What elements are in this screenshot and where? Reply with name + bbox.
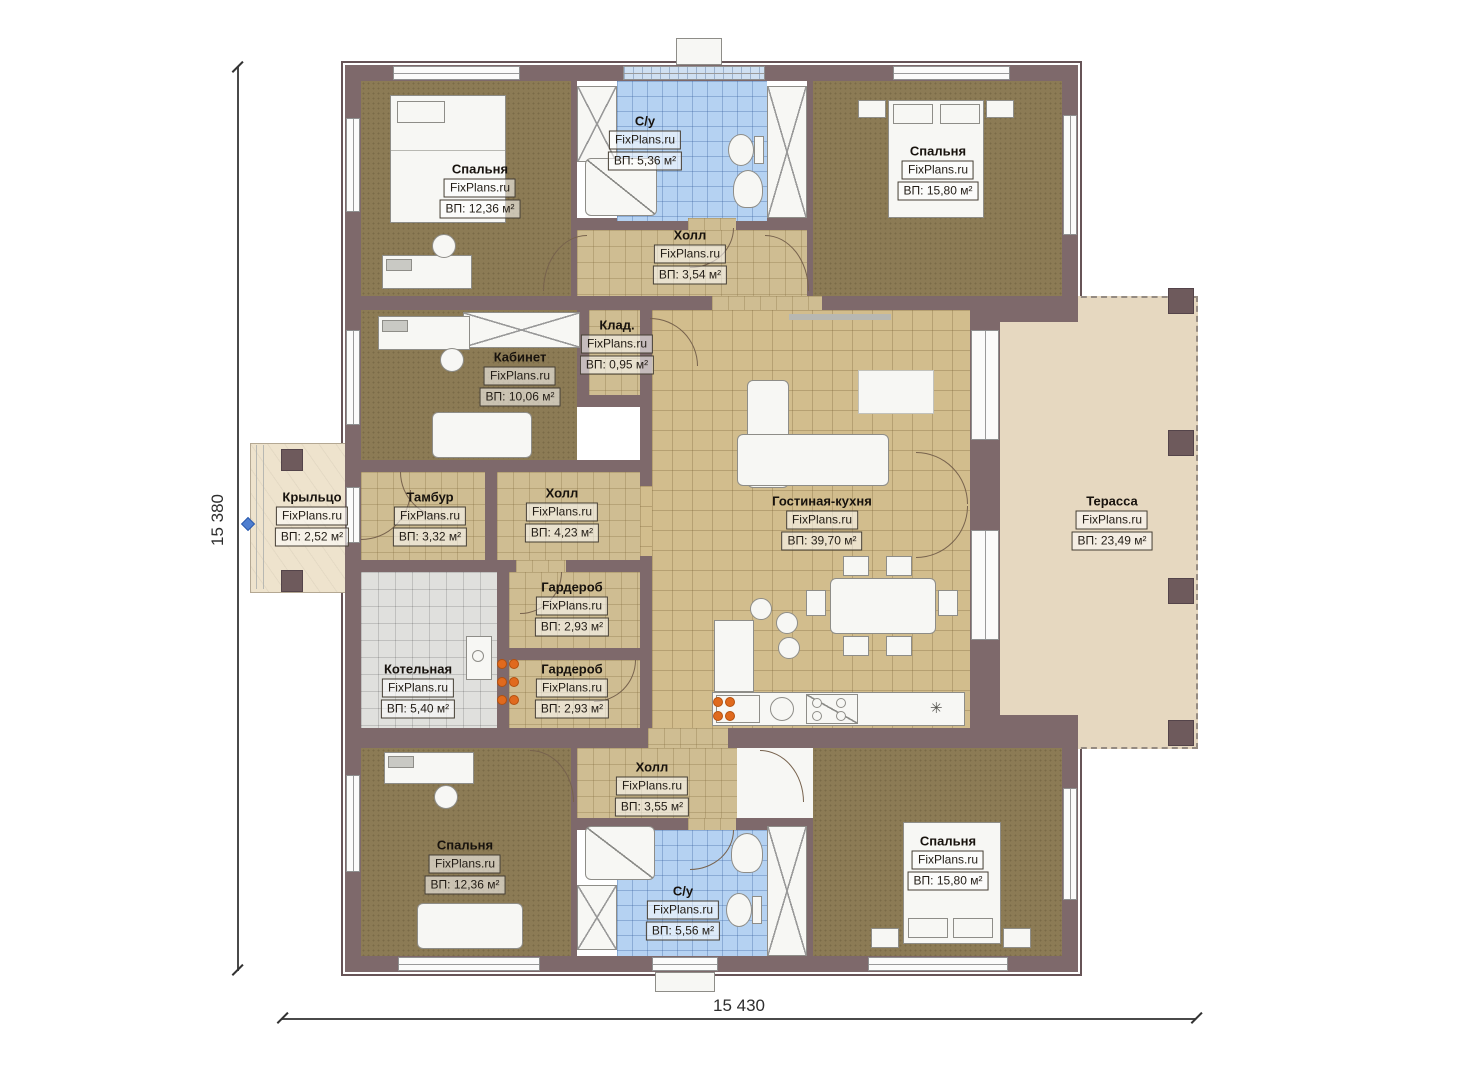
room-name: Спальня xyxy=(437,838,493,853)
dimension-label-left: 15 380 xyxy=(208,490,228,550)
dining-table xyxy=(830,578,936,634)
room-label-hall-middle: Холл FixPlans.ru ВП: 4,23 м² xyxy=(525,486,599,543)
room-brand-watermark: FixPlans.ru xyxy=(902,161,974,180)
room-name: Клад. xyxy=(599,318,634,333)
room-name: Кабинет xyxy=(494,350,547,365)
terrace-post xyxy=(1168,430,1194,456)
dimension-label-bottom: 15 430 xyxy=(679,996,799,1016)
stool xyxy=(776,612,798,634)
opening xyxy=(688,818,736,830)
room-label-hall-top: Холл FixPlans.ru ВП: 3,54 м² xyxy=(653,228,727,285)
radiator-dot xyxy=(726,712,734,720)
room-label-bedroom-top-right: Спальня FixPlans.ru ВП: 15,80 м² xyxy=(898,144,979,201)
dining-chair xyxy=(886,636,912,656)
stove-burner xyxy=(812,711,822,721)
room-label-terrace: Терасса FixPlans.ru ВП: 23,49 м² xyxy=(1072,494,1153,551)
room-label-bedroom-bottom-right: Спальня FixPlans.ru ВП: 15,80 м² xyxy=(908,834,989,891)
window xyxy=(398,957,540,971)
room-brand-watermark: FixPlans.ru xyxy=(912,851,984,870)
room-area: ВП: 12,36 м² xyxy=(440,200,521,219)
nightstand xyxy=(986,100,1014,118)
room-name: Терасса xyxy=(1086,494,1138,509)
wall xyxy=(497,572,509,728)
chair xyxy=(440,348,464,372)
room-brand-watermark: FixPlans.ru xyxy=(382,679,454,698)
toilet-tank xyxy=(752,896,762,924)
dimension-line-left xyxy=(237,67,239,971)
radiator-dot xyxy=(714,698,722,706)
porch-step-line xyxy=(256,445,257,589)
toilet-tank xyxy=(754,136,764,164)
room-label-bathroom-bottom: С/у FixPlans.ru ВП: 5,56 м² xyxy=(646,884,720,941)
tv-console xyxy=(789,314,891,320)
bed-pillow xyxy=(940,104,980,124)
closet xyxy=(577,885,617,950)
radiator-dot xyxy=(714,712,722,720)
room-brand-watermark: FixPlans.ru xyxy=(526,503,598,522)
terrace-post xyxy=(1168,720,1194,746)
room-label-boiler: Котельная FixPlans.ru ВП: 5,40 м² xyxy=(381,662,455,719)
nightstand xyxy=(871,928,899,948)
window xyxy=(1063,115,1077,235)
room-brand-watermark: FixPlans.ru xyxy=(654,245,726,264)
room-name: Холл xyxy=(546,486,579,501)
radiator-dot xyxy=(510,696,518,704)
wall xyxy=(509,648,640,660)
room-name: Спальня xyxy=(910,144,966,159)
room-name: С/у xyxy=(673,884,693,899)
bed-blanket-line xyxy=(391,150,505,151)
dining-chair xyxy=(843,556,869,576)
window xyxy=(893,66,1010,80)
wall xyxy=(361,460,652,472)
stool xyxy=(778,637,800,659)
stool xyxy=(750,598,772,620)
room-area: ВП: 2,93 м² xyxy=(535,700,609,719)
room-name: Котельная xyxy=(384,662,452,677)
back-door xyxy=(652,957,718,971)
sink xyxy=(731,833,763,873)
room-brand-watermark: FixPlans.ru xyxy=(616,777,688,796)
room-label-living-kitchen: Гостиная-кухня FixPlans.ru ВП: 39,70 м² xyxy=(772,494,872,551)
room-area: ВП: 4,23 м² xyxy=(525,524,599,543)
room-area: ВП: 3,54 м² xyxy=(653,266,727,285)
room-area: ВП: 15,80 м² xyxy=(908,872,989,891)
fridge xyxy=(716,695,760,723)
room-area: ВП: 15,80 м² xyxy=(898,182,979,201)
room-area: ВП: 12,36 м² xyxy=(425,876,506,895)
room-brand-watermark: FixPlans.ru xyxy=(429,855,501,874)
boiler-gauge xyxy=(472,650,484,662)
room-brand-watermark: FixPlans.ru xyxy=(484,367,556,386)
window xyxy=(1063,788,1077,900)
porch-post xyxy=(281,449,303,471)
room-area: ВП: 5,56 м² xyxy=(646,922,720,941)
dining-chair xyxy=(938,590,958,616)
room-label-office: Кабинет FixPlans.ru ВП: 10,06 м² xyxy=(480,350,561,407)
sink xyxy=(733,170,763,208)
sofa xyxy=(432,412,532,458)
desk-device xyxy=(382,320,408,332)
room-label-bedroom-bottom-left: Спальня FixPlans.ru ВП: 12,36 м² xyxy=(425,838,506,895)
room-brand-watermark: FixPlans.ru xyxy=(444,179,516,198)
room-name: Спальня xyxy=(920,834,976,849)
room-label-storage: Клад. FixPlans.ru ВП: 0,95 м² xyxy=(580,318,654,375)
freezer-symbol: ✳ xyxy=(930,701,943,716)
room-name: Крыльцо xyxy=(282,490,341,505)
bed-pillow xyxy=(953,918,993,938)
room-brand-watermark: FixPlans.ru xyxy=(276,507,348,526)
room-brand-watermark: FixPlans.ru xyxy=(536,597,608,616)
room-label-porch: Крыльцо FixPlans.ru ВП: 2,52 м² xyxy=(275,490,349,547)
bed-pillow xyxy=(397,101,445,123)
kitchen-counter-return xyxy=(714,620,754,692)
window xyxy=(346,775,360,872)
shower xyxy=(585,826,655,880)
radiator-dot xyxy=(510,678,518,686)
dining-chair xyxy=(843,636,869,656)
room-name: Гардероб xyxy=(541,662,602,677)
entry-step xyxy=(676,38,722,65)
room-area: ВП: 2,52 м² xyxy=(275,528,349,547)
wardrobe-cabinet xyxy=(463,312,580,348)
opening xyxy=(640,486,652,556)
kitchen-sink xyxy=(770,697,794,721)
radiator-dot xyxy=(726,698,734,706)
window-glass-block xyxy=(623,66,765,80)
room-label-wardrobe-upper: Гардероб FixPlans.ru ВП: 2,93 м² xyxy=(535,580,609,637)
toilet xyxy=(728,134,754,166)
room-label-hall-bottom: Холл FixPlans.ru ВП: 3,55 м² xyxy=(615,760,689,817)
sofa-section xyxy=(737,434,889,486)
nightstand xyxy=(858,100,886,118)
room-label-bedroom-top-left: Спальня FixPlans.ru ВП: 12,36 м² xyxy=(440,162,521,219)
entry-step xyxy=(655,972,715,992)
rug xyxy=(858,370,934,414)
room-brand-watermark: FixPlans.ru xyxy=(1076,511,1148,530)
opening xyxy=(516,560,566,572)
room-label-bathroom-top: С/у FixPlans.ru ВП: 5,36 м² xyxy=(608,114,682,171)
room-area: ВП: 3,32 м² xyxy=(393,528,467,547)
sofa xyxy=(417,903,523,949)
room-area: ВП: 2,93 м² xyxy=(535,618,609,637)
room-brand-watermark: FixPlans.ru xyxy=(609,131,681,150)
room-name: С/у xyxy=(635,114,655,129)
terrace-door xyxy=(971,530,999,640)
chair xyxy=(432,234,456,258)
radiator-dot xyxy=(510,660,518,668)
stove-burner xyxy=(836,711,846,721)
room-brand-watermark: FixPlans.ru xyxy=(581,335,653,354)
wall xyxy=(485,472,497,560)
room-name: Тамбур xyxy=(406,490,453,505)
toilet xyxy=(726,893,752,927)
window xyxy=(346,118,360,212)
room-name: Гардероб xyxy=(541,580,602,595)
closet xyxy=(767,86,807,218)
bed-pillow xyxy=(908,918,948,938)
closet xyxy=(767,826,807,956)
chair xyxy=(434,785,458,809)
porch-post xyxy=(281,570,303,592)
room-brand-watermark: FixPlans.ru xyxy=(536,679,608,698)
dimension-line-bottom xyxy=(282,1018,1196,1020)
room-label-vestibule: Тамбур FixPlans.ru ВП: 3,32 м² xyxy=(393,490,467,547)
stove-burner xyxy=(836,698,846,708)
room-name: Гостиная-кухня xyxy=(772,494,872,509)
room-area: ВП: 3,55 м² xyxy=(615,798,689,817)
dining-chair xyxy=(886,556,912,576)
room-label-wardrobe-lower: Гардероб FixPlans.ru ВП: 2,93 м² xyxy=(535,662,609,719)
nightstand xyxy=(1003,928,1031,948)
room-area: ВП: 5,36 м² xyxy=(608,152,682,171)
room-area: ВП: 0,95 м² xyxy=(580,356,654,375)
terrace-door xyxy=(971,330,999,440)
room-name: Спальня xyxy=(452,162,508,177)
room-brand-watermark: FixPlans.ru xyxy=(786,511,858,530)
window xyxy=(868,957,1008,971)
window xyxy=(393,66,520,80)
room-brand-watermark: FixPlans.ru xyxy=(647,901,719,920)
opening xyxy=(648,728,728,748)
room-area: ВП: 39,70 м² xyxy=(782,532,863,551)
bed-pillow xyxy=(893,104,933,124)
terrace-post xyxy=(1168,578,1194,604)
radiator-dot xyxy=(498,678,506,686)
room-area: ВП: 10,06 м² xyxy=(480,388,561,407)
window xyxy=(346,330,360,425)
room-name: Холл xyxy=(674,228,707,243)
floor-plan: 15 380 15 430 xyxy=(0,0,1474,1080)
dining-chair xyxy=(806,590,826,616)
stove-burner xyxy=(812,698,822,708)
desk-device xyxy=(386,259,412,271)
room-name: Холл xyxy=(636,760,669,775)
opening xyxy=(712,296,822,310)
desk-device xyxy=(388,756,414,768)
wall xyxy=(361,560,652,572)
radiator-dot xyxy=(498,660,506,668)
radiator-dot xyxy=(498,696,506,704)
room-brand-watermark: FixPlans.ru xyxy=(394,507,466,526)
room-area: ВП: 23,49 м² xyxy=(1072,532,1153,551)
porch-step-line xyxy=(263,445,264,589)
terrace-post xyxy=(1168,288,1194,314)
room-area: ВП: 5,40 м² xyxy=(381,700,455,719)
